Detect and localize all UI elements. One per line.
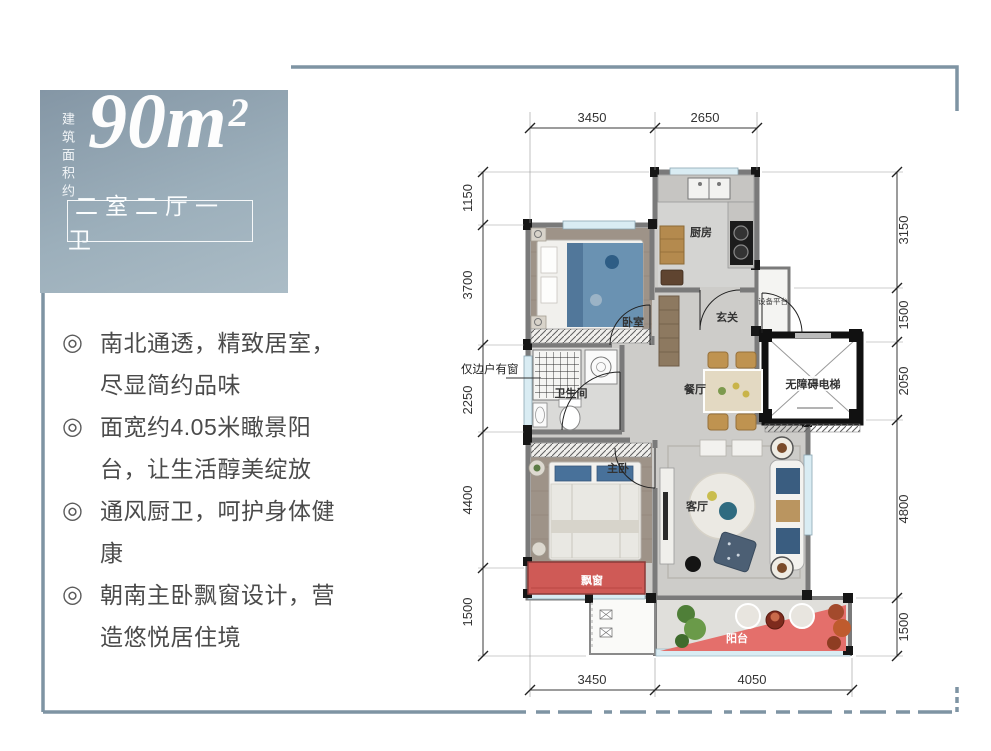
area-card: 建筑面积约 90m2 二室二厅一卫: [40, 90, 288, 293]
area-value: 90m2: [88, 76, 247, 166]
balcony: 阳台: [660, 604, 851, 651]
ac-platform: [590, 598, 655, 654]
balcony-chair: [736, 604, 760, 628]
bedroom-label: 卧室: [622, 315, 644, 329]
dim-left-4: 4400: [460, 486, 475, 515]
living-label: 客厅: [685, 499, 708, 513]
hall-cabinet: [659, 296, 679, 366]
dim-bottom-2: 4050: [738, 672, 767, 687]
feature-list: ◎ 南北通透，精致居室，尽显简约品味 ◎ 面宽约4.05米瞰景阳台，让生活醇美绽…: [62, 322, 392, 658]
elevator-hatch: [765, 424, 860, 432]
bullet-icon: ◎: [62, 322, 100, 406]
dining-chair: [708, 414, 728, 430]
feature-item: ◎ 南北通透，精致居室，尽显简约品味: [62, 322, 392, 406]
stool: [532, 542, 546, 556]
dining-chair: [708, 352, 728, 368]
bullet-icon: ◎: [62, 574, 100, 658]
elevator-label: 无障碍电梯: [785, 377, 841, 391]
stool: [732, 440, 762, 456]
area-number: 90m: [88, 77, 227, 164]
dim-left-5: 1500: [460, 598, 475, 627]
flyer-page: 厨房 设备平台 无障碍电梯 卧室: [0, 0, 991, 751]
bathroom-window: [524, 356, 532, 426]
elevator: 无障碍电梯: [759, 329, 862, 432]
dim-right-1: 3150: [896, 216, 911, 245]
balcony-chair: [790, 604, 814, 628]
bullet-icon: ◎: [62, 490, 100, 574]
dim-right-5: 1500: [896, 613, 911, 642]
bay-window-label: 飘窗: [581, 573, 603, 587]
dim-top-1: 3450: [578, 110, 607, 125]
feature-text: 朝南主卧飘窗设计，营造悠悦居住境: [100, 574, 352, 658]
small-appliance-icon: [661, 270, 683, 285]
bullet-icon: ◎: [62, 406, 100, 490]
dim-right-4: 4800: [896, 495, 911, 524]
feature-text: 南北通透，精致居室，尽显简约品味: [100, 322, 352, 406]
nightstand: [531, 316, 546, 329]
dim-left-3: 2250: [460, 386, 475, 415]
tv-icon: [663, 492, 668, 540]
kitchen-label: 厨房: [690, 225, 712, 239]
washing-machine-icon: [585, 350, 617, 384]
feature-item: ◎ 面宽约4.05米瞰景阳台，让生活醇美绽放: [62, 406, 392, 490]
side-table-dark: [685, 556, 701, 572]
kitchen-cabinet: [660, 226, 684, 264]
dining-table: [704, 370, 762, 412]
dining-label: 餐厅: [683, 382, 706, 396]
feature-item: ◎ 通风厨卫，呵护身体健康: [62, 490, 392, 574]
feature-text: 面宽约4.05米瞰景阳台，让生活醇美绽放: [100, 406, 352, 490]
dining-chair: [736, 414, 756, 430]
dim-bottom-1: 3450: [578, 672, 607, 687]
layout-tag: 二室二厅一卫: [67, 200, 253, 242]
dim-right-2: 1500: [896, 301, 911, 330]
bedroom: 卧室: [531, 228, 651, 343]
window-note-text: 仅边户有窗: [461, 362, 519, 376]
dim-left-2: 3700: [460, 271, 475, 300]
balcony-label: 阳台: [726, 631, 748, 645]
entry-label: 玄关: [716, 310, 738, 324]
stool: [700, 440, 726, 456]
area-superscript: 2: [229, 90, 249, 135]
bedroom-window: [563, 221, 635, 229]
dim-left-1: 1150: [460, 184, 475, 212]
dim-right-3: 2050: [896, 367, 911, 396]
nightstand: [531, 228, 546, 241]
feature-item: ◎ 朝南主卧飘窗设计，营造悠悦居住境: [62, 574, 392, 658]
feature-text: 通风厨卫，呵护身体健康: [100, 490, 352, 574]
dining-chair: [736, 352, 756, 368]
dim-top-2: 2650: [691, 110, 720, 125]
living-window: [804, 455, 812, 535]
